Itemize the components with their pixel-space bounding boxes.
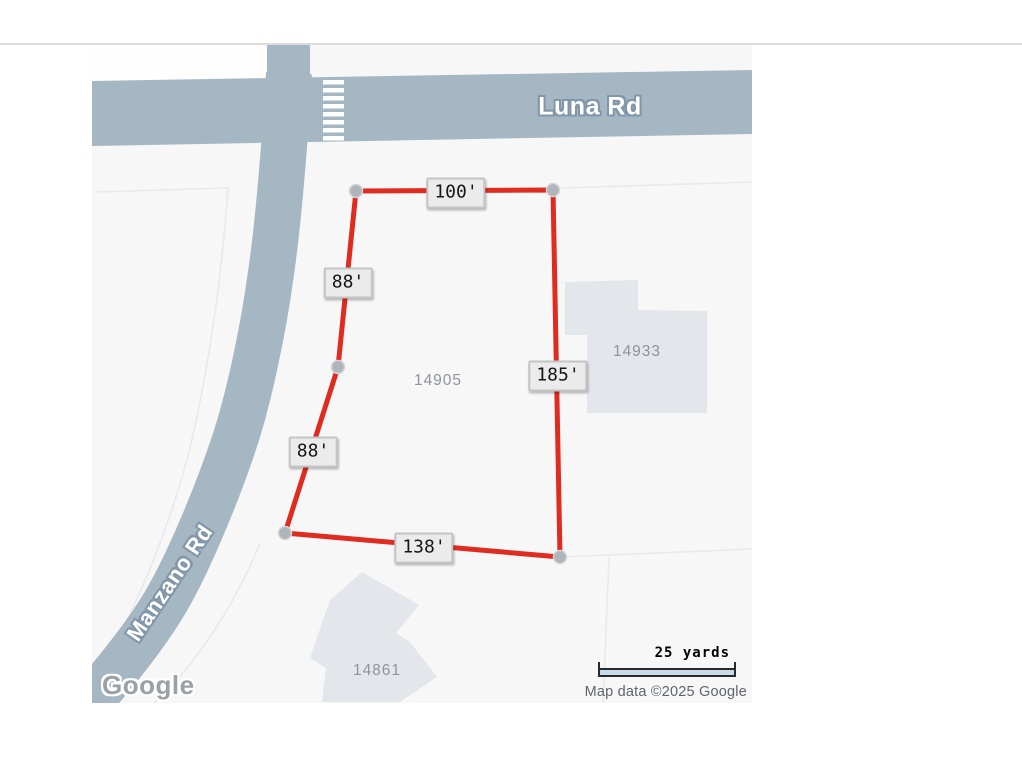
- dimension-label-bottom: 138': [394, 533, 453, 564]
- scale-bar: [598, 662, 736, 677]
- vertex-dot: [547, 184, 560, 197]
- dimension-label-upper-left: 88': [324, 268, 373, 299]
- parcel-topleft: [92, 45, 268, 83]
- vertex-dot: [332, 361, 345, 374]
- vertex-dot: [554, 551, 567, 564]
- google-logo[interactable]: Google: [102, 670, 195, 701]
- dimension-label-top: 100': [426, 178, 485, 209]
- scale-label: 25 yards: [598, 645, 736, 661]
- parcel-number-14861: 14861: [353, 662, 401, 680]
- vertex-dot: [279, 527, 292, 540]
- page: Luna Rd Manzano Rd 100' 88' 185' 88' 138…: [0, 0, 1022, 769]
- dimension-label-right: 185': [528, 361, 587, 392]
- map-attribution: Map data ©2025 Google: [585, 684, 747, 700]
- dimension-label-lower-left: 88': [289, 437, 338, 468]
- road-luna-shape: [92, 70, 752, 146]
- scale-bar-fill: [600, 668, 734, 677]
- map-scale-control: 25 yards: [598, 645, 736, 677]
- parcel-number-14905: 14905: [414, 372, 462, 390]
- parcel-number-14933: 14933: [613, 343, 661, 361]
- vertex-dot: [350, 185, 363, 198]
- map-canvas[interactable]: Luna Rd Manzano Rd 100' 88' 185' 88' 138…: [92, 45, 752, 703]
- road-label-luna: Luna Rd: [538, 93, 642, 122]
